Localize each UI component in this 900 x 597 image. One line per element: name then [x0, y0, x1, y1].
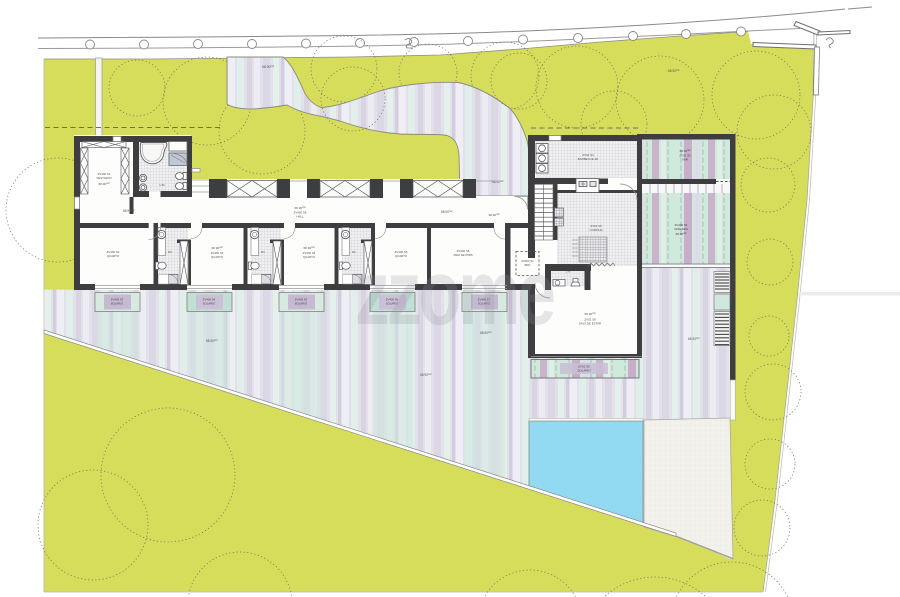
svg-text:SALA DE ESTAR: SALA DE ESTAR	[579, 322, 601, 326]
svg-text:WC: WC	[261, 251, 265, 254]
svg-text:VAR: VAR	[682, 158, 688, 162]
svg-text:zzome: zzome	[355, 242, 554, 344]
svg-text:VESTIARIO: VESTIARIO	[96, 176, 112, 180]
svg-text:VARANDA: VARANDA	[674, 227, 688, 231]
svg-text:2 m: 2 m	[566, 270, 571, 274]
svg-text:QUARTO: QUARTO	[107, 254, 120, 258]
svg-text:BARBECUE 4D: BARBECUE 4D	[578, 157, 598, 161]
svg-text:SOLARIO: SOLARIO	[577, 369, 591, 373]
svg-text:WC: WC	[168, 251, 172, 254]
svg-text:SOLARIO: SOLARIO	[111, 302, 124, 306]
svg-text:HALL: HALL	[296, 215, 304, 219]
svg-text:QUARTO: QUARTO	[303, 255, 316, 259]
svg-text:SOLARIO: SOLARIO	[295, 302, 308, 306]
svg-text:SOLARIO: SOLARIO	[203, 302, 216, 306]
svg-text:1.5h: 1.5h	[159, 183, 165, 187]
svg-text:QUARTO: QUARTO	[211, 255, 224, 259]
svg-text:COZINHA: COZINHA	[589, 228, 602, 232]
